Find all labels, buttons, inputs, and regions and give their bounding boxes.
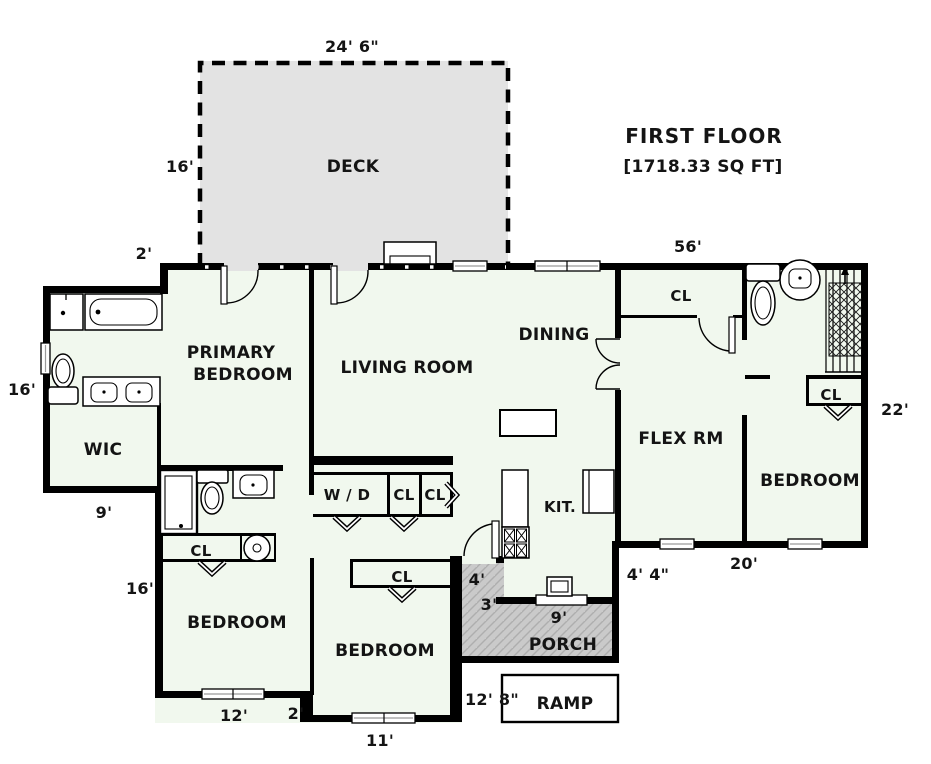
dim-bedroom-left-width: 12' — [220, 706, 248, 725]
dim-bath-wing-depth: 16' — [8, 380, 36, 399]
dim-entry-side: 4' 4" — [627, 565, 670, 584]
deck-step — [384, 242, 436, 264]
window — [453, 261, 487, 271]
label-closet-bedroom-middle: CL — [391, 568, 412, 586]
laundry-closet-bottom — [313, 514, 452, 517]
label-closet-bedroom-left: CL — [190, 542, 211, 560]
label-closet-laundry-1: CL — [393, 486, 414, 504]
dim-bedroom-middle-width: 11' — [366, 731, 394, 750]
stove-icon — [502, 527, 529, 558]
laundry-closet-right — [450, 472, 453, 517]
wall-wic-bottom — [43, 486, 163, 493]
label-primary-bedroom-line1: PRIMARY — [187, 343, 276, 363]
page-subtitle: [1718.33 SQ FT] — [623, 157, 782, 177]
floor-plan-drawing: FIRST FLOOR [1718.33 SQ FT] DECK PRIMARY… — [0, 0, 931, 764]
wall-rear-right — [615, 541, 868, 548]
fridge-icon — [583, 470, 614, 513]
shower-icon — [160, 470, 197, 534]
label-bedroom-left: BEDROOM — [187, 613, 287, 633]
round-sink-icon — [780, 260, 820, 300]
window — [535, 261, 600, 271]
label-deck: DECK — [327, 157, 380, 177]
laundry-closet-top — [313, 472, 452, 475]
dim-lower-left-depth: 16' — [126, 579, 154, 598]
label-dining: DINING — [519, 325, 590, 345]
dim-porch-nook-width: 4' — [469, 570, 486, 589]
page-title: FIRST FLOOR — [625, 124, 783, 148]
sink-icon — [233, 470, 274, 498]
label-porch: PORCH — [529, 635, 597, 655]
label-wic: WIC — [84, 440, 122, 460]
shower-drain-icon — [61, 311, 65, 315]
opening-primary-deck — [224, 263, 258, 271]
window — [202, 689, 264, 699]
wall-dining-upper — [615, 270, 621, 338]
opening-living-deck — [333, 263, 368, 271]
dim-ramp-width: 12' 8" — [465, 690, 519, 709]
window — [660, 539, 694, 549]
window — [41, 343, 50, 374]
wall-dining-lower — [615, 390, 621, 541]
closet-under-stairs-left — [806, 379, 809, 406]
label-washer-dryer: W / D — [324, 486, 370, 504]
label-closet-laundry-2: CL — [424, 486, 445, 504]
closet-left-end — [274, 533, 276, 562]
floor-plan-page: FIRST FLOOR [1718.33 SQ FT] DECK PRIMARY… — [0, 0, 931, 764]
label-bedroom-middle: BEDROOM — [335, 641, 435, 661]
dim-porch-nook-depth: 3' — [481, 595, 498, 614]
entry-step — [547, 577, 572, 596]
dim-bedroom-step-offset: 2' — [288, 704, 305, 723]
wall-living-south — [309, 456, 453, 465]
wall-bedroom-right-north-b — [806, 375, 868, 379]
dim-right-wall: 22' — [881, 400, 909, 419]
bathtub-icon — [85, 294, 162, 330]
label-closet-under-stairs: CL — [820, 386, 841, 404]
lower-left-floor — [155, 467, 462, 723]
label-flex-room: FLEX RM — [638, 429, 723, 449]
label-living-room: LIVING ROOM — [341, 358, 474, 378]
wall-hall-closet-a — [621, 315, 697, 318]
double-vanity — [83, 377, 160, 406]
label-bedroom-right: BEDROOM — [760, 471, 860, 491]
wall-bedroom-right-north-a — [745, 375, 770, 379]
label-closet-hall: CL — [670, 287, 691, 305]
laundry-closet-div2 — [419, 472, 422, 517]
window — [788, 539, 822, 549]
label-ramp: RAMP — [537, 694, 594, 714]
dim-porch-width: 9' — [551, 608, 568, 627]
dim-wic-width: 9' — [96, 503, 113, 522]
window — [352, 713, 415, 723]
label-kitchen: KIT. — [544, 498, 576, 516]
wall-top-left-connector — [160, 263, 168, 294]
kitchen-counter — [502, 470, 528, 527]
opening-porch-hall — [462, 556, 496, 564]
label-primary-bedroom-line2: BEDROOM — [193, 365, 293, 385]
dim-top-wall: 56' — [674, 237, 702, 256]
closet-left-div — [240, 533, 242, 562]
dim-front-offset: 2' — [136, 244, 153, 263]
dim-deck-width: 24' 6" — [325, 37, 379, 56]
kitchen-island — [500, 410, 556, 436]
wall-flex-bedroom-divider — [742, 415, 747, 541]
wall-bedroom-divider — [310, 558, 314, 695]
stair-runner-crosshatch — [829, 283, 862, 356]
dim-deck-depth: 16' — [166, 157, 194, 176]
wall-bedroom-middle-right — [450, 558, 462, 722]
dim-rear-wall: 20' — [730, 554, 758, 573]
wall-porch-bottom — [452, 656, 619, 663]
wall-wing-top — [43, 286, 168, 293]
water-heater-icon — [244, 535, 270, 561]
closet-middle-left — [350, 559, 353, 588]
closet-middle-top — [350, 559, 453, 562]
laundry-closet-div1 — [387, 472, 390, 517]
